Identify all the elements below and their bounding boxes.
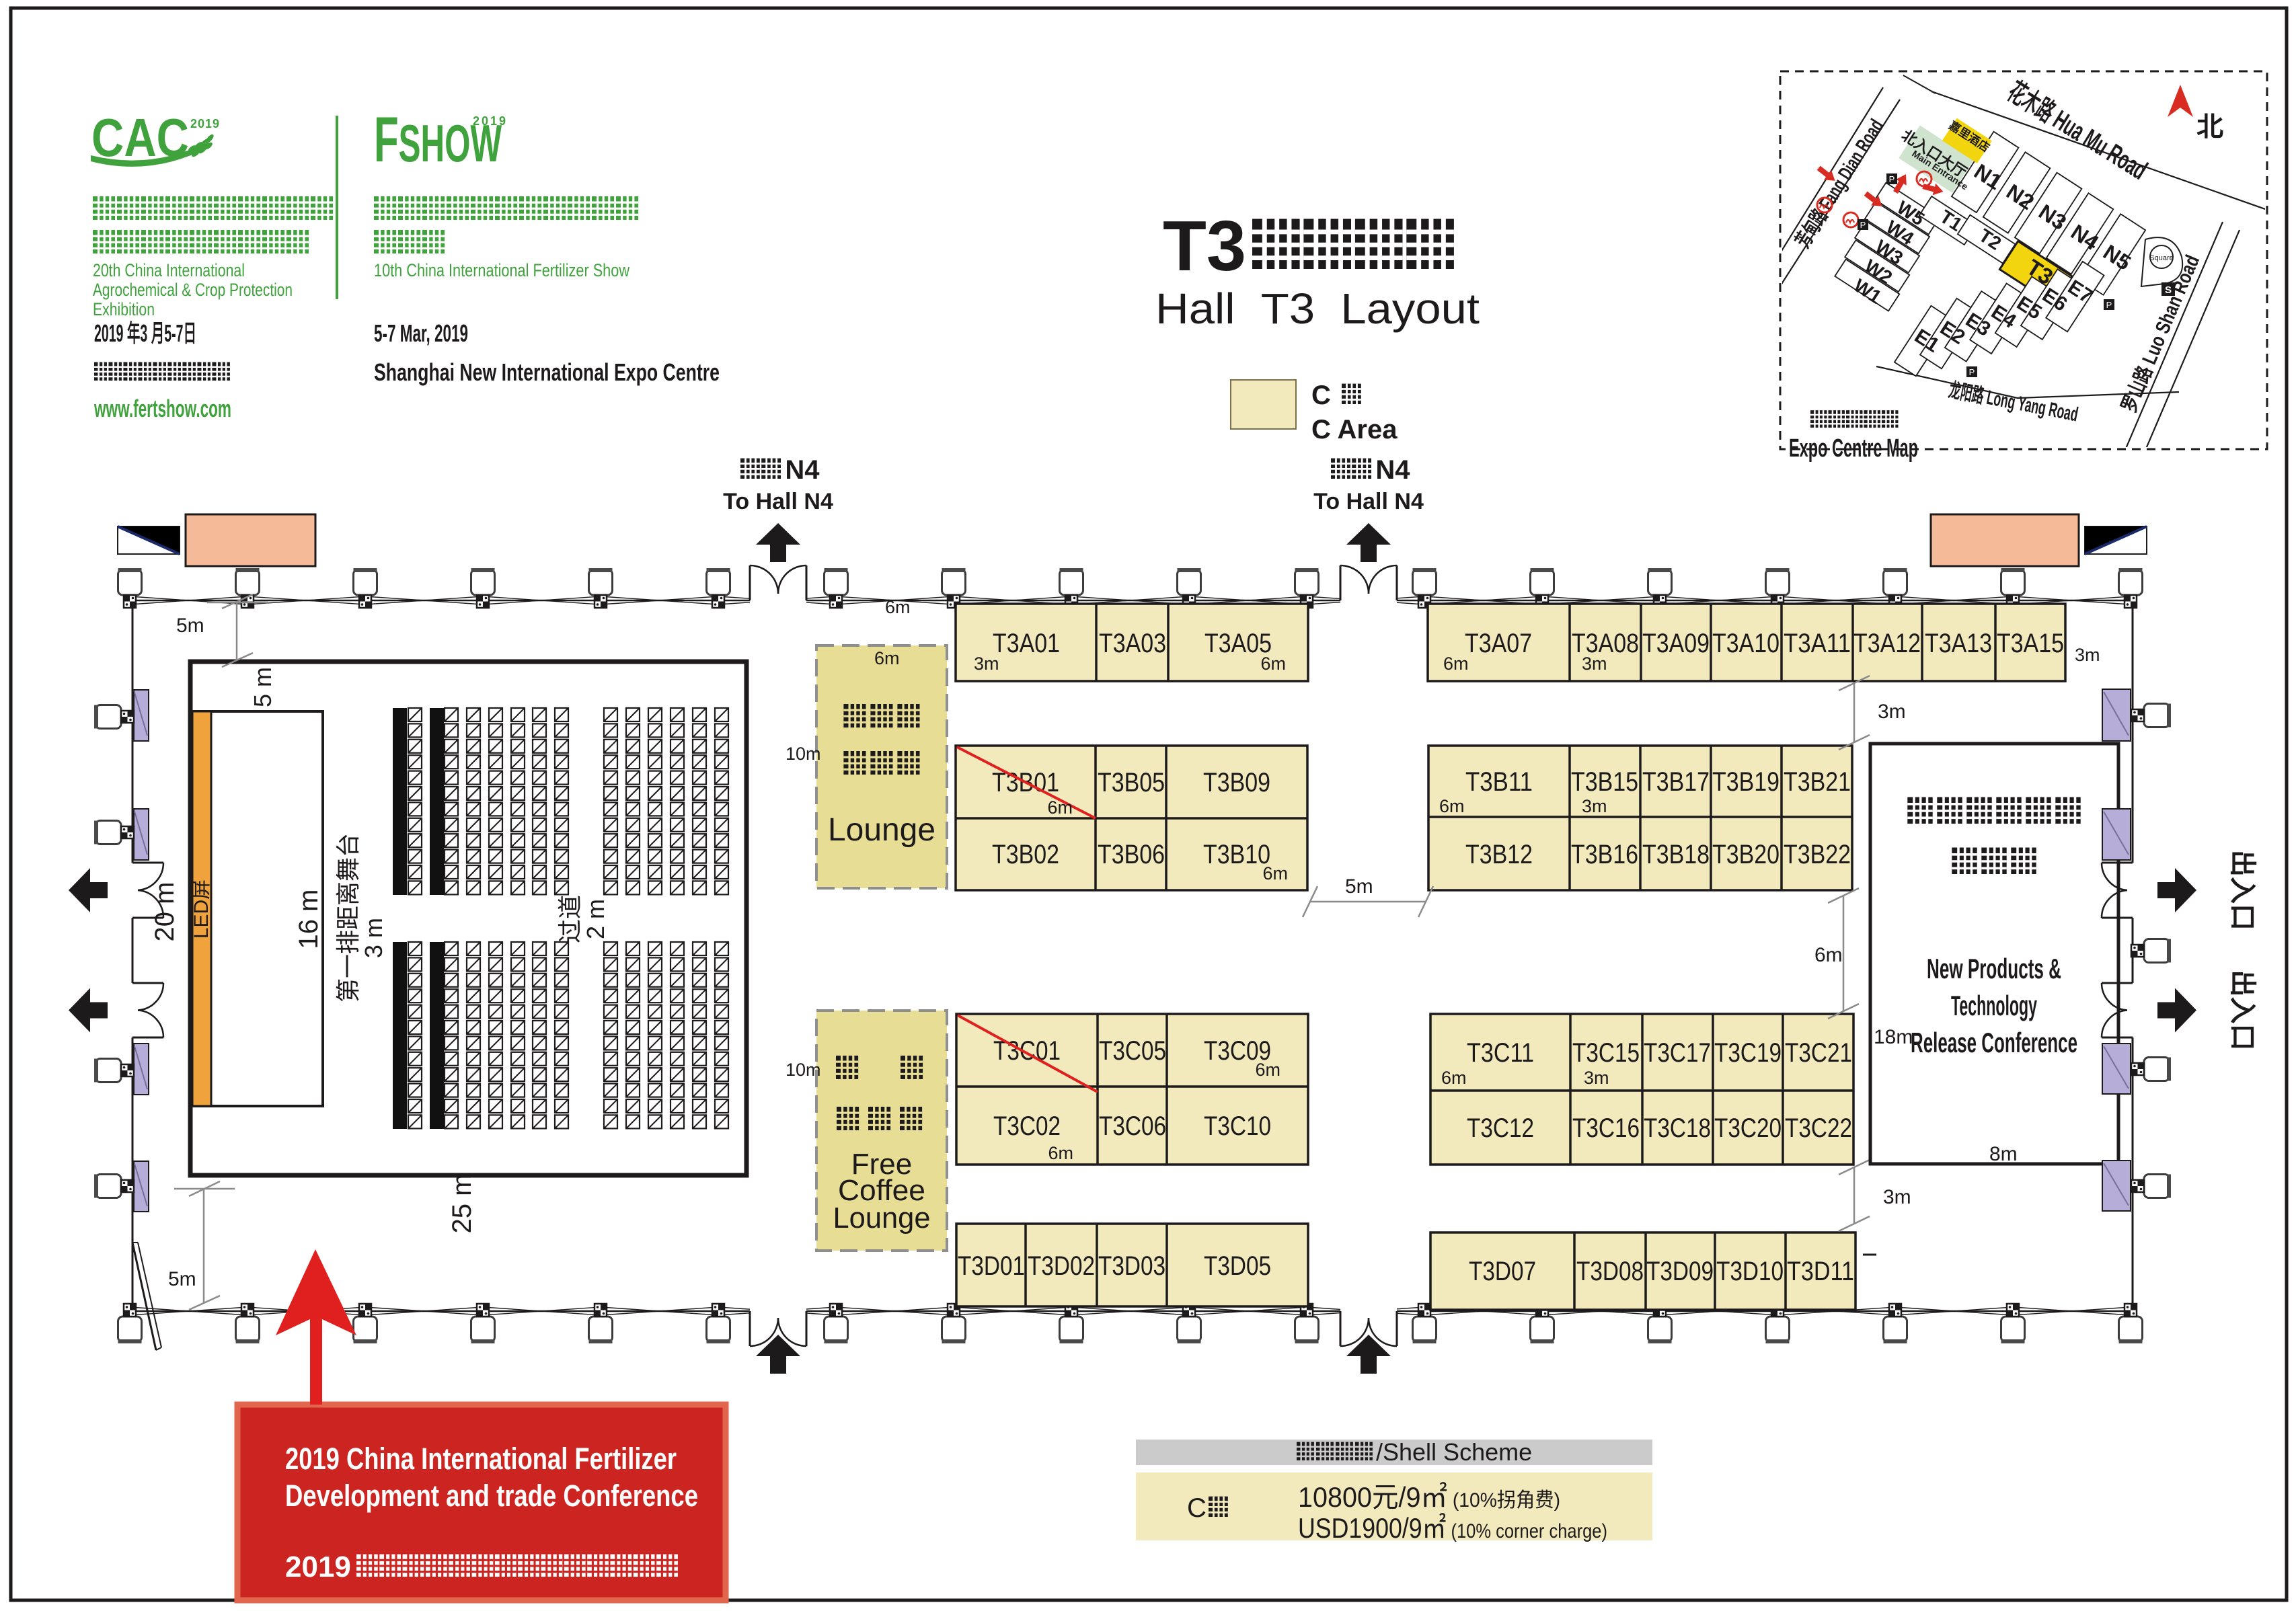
svg-text:25 m: 25 m: [447, 1174, 477, 1234]
svg-text:第一排距离舞台: 第一排距离舞台: [334, 833, 362, 1003]
svg-text:5m: 5m: [176, 615, 204, 637]
svg-text:Expo Centre Map: Expo Centre Map: [1789, 434, 1918, 463]
svg-text:T3A07: T3A07: [1465, 629, 1532, 658]
svg-text:T3A12: T3A12: [1853, 629, 1921, 658]
svg-text:T3B02: T3B02: [992, 840, 1059, 869]
svg-text:T3A15: T3A15: [1997, 629, 2064, 658]
svg-text:T3A10: T3A10: [1712, 629, 1780, 658]
svg-text:/Shell Scheme: /Shell Scheme: [1376, 1438, 1532, 1466]
svg-text:T3B12: T3B12: [1465, 840, 1533, 869]
svg-text:2 m: 2 m: [582, 899, 609, 939]
svg-text:T3: T3: [1163, 206, 1246, 286]
svg-text:5 m: 5 m: [249, 667, 276, 707]
svg-text:Agrochemical & Crop Protection: Agrochemical & Crop Protection: [93, 280, 293, 300]
svg-text:T3D07: T3D07: [1469, 1257, 1536, 1286]
svg-text:T3B09: T3B09: [1203, 768, 1270, 797]
svg-text:10m: 10m: [786, 744, 821, 764]
svg-text:3m: 3m: [1582, 796, 1607, 816]
svg-text:18m: 18m: [1874, 1026, 1913, 1048]
svg-text:T3C15: T3C15: [1572, 1038, 1640, 1068]
svg-text:T3D02: T3D02: [1028, 1251, 1095, 1281]
svg-text:C: C: [1311, 381, 1331, 410]
svg-text:T3B19: T3B19: [1712, 767, 1780, 797]
svg-text:5m: 5m: [1345, 875, 1373, 898]
svg-text:6m: 6m: [1441, 1068, 1467, 1088]
svg-text:T3C22: T3C22: [1785, 1113, 1852, 1143]
svg-text:6m: 6m: [885, 597, 911, 617]
svg-text:www.fertshow.com: www.fertshow.com: [93, 395, 231, 422]
svg-text:T3B17: T3B17: [1642, 767, 1710, 797]
svg-text:T3C06: T3C06: [1099, 1111, 1166, 1141]
svg-text:T3B18: T3B18: [1642, 840, 1710, 869]
svg-text:T3B11: T3B11: [1465, 767, 1533, 797]
svg-text:T3C18: T3C18: [1644, 1113, 1711, 1143]
svg-text:S: S: [2165, 284, 2172, 296]
svg-text:Development and trade Conferen: Development and trade Conference: [285, 1479, 698, 1513]
svg-text:T3D09: T3D09: [1646, 1257, 1714, 1286]
svg-text:6m: 6m: [1443, 654, 1469, 674]
svg-text:T3C10: T3C10: [1204, 1111, 1271, 1141]
svg-text:T3C21: T3C21: [1785, 1038, 1852, 1068]
svg-text:To Hall N4: To Hall N4: [723, 489, 833, 514]
svg-text:Exhibition: Exhibition: [93, 299, 155, 319]
svg-text:P: P: [1860, 220, 1866, 230]
svg-text:T3B06: T3B06: [1098, 840, 1165, 869]
svg-text:New Products &: New Products &: [1927, 953, 2061, 984]
svg-text:3m: 3m: [1584, 1068, 1609, 1088]
svg-text:6m: 6m: [1048, 1143, 1073, 1163]
svg-text:T3C19: T3C19: [1714, 1038, 1782, 1068]
svg-text:20 m: 20 m: [150, 882, 180, 942]
svg-text:Square: Square: [2149, 254, 2173, 262]
svg-text:3m: 3m: [1878, 701, 1906, 723]
svg-text:2019: 2019: [473, 114, 508, 128]
svg-text:T3B16: T3B16: [1571, 840, 1638, 869]
svg-text:T3D10: T3D10: [1716, 1257, 1784, 1286]
svg-text:T3C16: T3C16: [1572, 1113, 1640, 1143]
svg-text:3m: 3m: [974, 654, 999, 674]
svg-text:10m: 10m: [786, 1060, 821, 1080]
svg-text:Lounge: Lounge: [828, 812, 935, 848]
svg-text:6m: 6m: [1047, 797, 1073, 818]
svg-text:T3D03: T3D03: [1098, 1251, 1165, 1281]
svg-text:To Hall N4: To Hall N4: [1313, 489, 1424, 514]
svg-text:6m: 6m: [1262, 863, 1288, 883]
svg-text:N4: N4: [785, 455, 820, 485]
svg-text:T3B05: T3B05: [1098, 768, 1165, 797]
svg-text:6m: 6m: [1260, 654, 1286, 674]
svg-text:Shanghai New International Exp: Shanghai New International Expo Centre: [374, 358, 720, 386]
svg-text:C: C: [1187, 1493, 1207, 1523]
svg-text:T3C02: T3C02: [993, 1111, 1061, 1141]
svg-text:T3B15: T3B15: [1571, 767, 1638, 797]
svg-text:3m: 3m: [1883, 1186, 1911, 1208]
svg-text:过道: 过道: [556, 895, 584, 943]
svg-text:Release Conference: Release Conference: [1911, 1027, 2077, 1058]
svg-text:T3A09: T3A09: [1642, 629, 1710, 658]
svg-text:5m: 5m: [168, 1268, 196, 1290]
svg-text:N4: N4: [1375, 455, 1410, 485]
svg-text:Technology: Technology: [1951, 990, 2037, 1021]
svg-text:2019: 2019: [190, 117, 220, 130]
svg-text:T3C11: T3C11: [1467, 1038, 1534, 1068]
svg-text:T3A13: T3A13: [1925, 629, 1992, 658]
svg-text:LED屏: LED屏: [190, 879, 213, 939]
svg-text:北: 北: [2196, 112, 2223, 142]
svg-text:20th China International: 20th China International: [93, 260, 245, 280]
svg-text:T3B21: T3B21: [1784, 767, 1851, 797]
svg-text:6m: 6m: [1814, 944, 1843, 966]
svg-text:T3B20: T3B20: [1712, 840, 1780, 869]
svg-text:T3A01: T3A01: [993, 629, 1060, 658]
svg-text:Hall T3 Layout: Hall T3 Layout: [1155, 284, 1480, 333]
svg-text:C Area: C Area: [1311, 415, 1398, 444]
svg-text:6m: 6m: [1255, 1060, 1280, 1080]
svg-text:Lounge: Lounge: [833, 1202, 931, 1234]
svg-text:8m: 8m: [1989, 1143, 2018, 1165]
svg-text:T3A03: T3A03: [1099, 629, 1166, 658]
svg-text:T3C05: T3C05: [1099, 1036, 1166, 1066]
svg-text:T3D05: T3D05: [1204, 1251, 1271, 1281]
svg-text:5-7 Mar, 2019: 5-7 Mar, 2019: [374, 319, 468, 347]
svg-text:2019: 2019: [285, 1550, 351, 1583]
svg-text:10th China International Ferti: 10th China International Fertilizer Show: [374, 260, 629, 280]
svg-text:2019 年3 月5-7日: 2019 年3 月5-7日: [94, 319, 196, 347]
svg-text:P: P: [1969, 367, 1975, 377]
svg-text:T3B10: T3B10: [1203, 840, 1270, 869]
svg-text:T3D01: T3D01: [958, 1251, 1025, 1281]
svg-text:T3B22: T3B22: [1784, 840, 1851, 869]
svg-text:3m: 3m: [2075, 645, 2100, 665]
svg-text:T3D08: T3D08: [1576, 1257, 1644, 1286]
svg-text:T3A11: T3A11: [1784, 629, 1851, 658]
svg-text:3 m: 3 m: [360, 918, 387, 958]
svg-text:出入口: 出入口: [2227, 850, 2257, 931]
svg-text:16 m: 16 m: [294, 890, 323, 949]
svg-text:2019 China International Ferti: 2019 China International Fertilizer: [285, 1442, 677, 1476]
svg-text:T3C12: T3C12: [1467, 1113, 1534, 1143]
svg-text:P: P: [1889, 174, 1895, 184]
svg-text:T3D11: T3D11: [1787, 1257, 1854, 1286]
svg-text:6m: 6m: [1439, 796, 1465, 816]
svg-text:6m: 6m: [874, 648, 900, 668]
svg-text:3m: 3m: [1582, 654, 1607, 674]
svg-text:出入口: 出入口: [2227, 970, 2257, 1051]
svg-text:T3C20: T3C20: [1714, 1113, 1782, 1143]
svg-text:P: P: [2106, 300, 2112, 310]
svg-text:T3C17: T3C17: [1644, 1038, 1711, 1068]
